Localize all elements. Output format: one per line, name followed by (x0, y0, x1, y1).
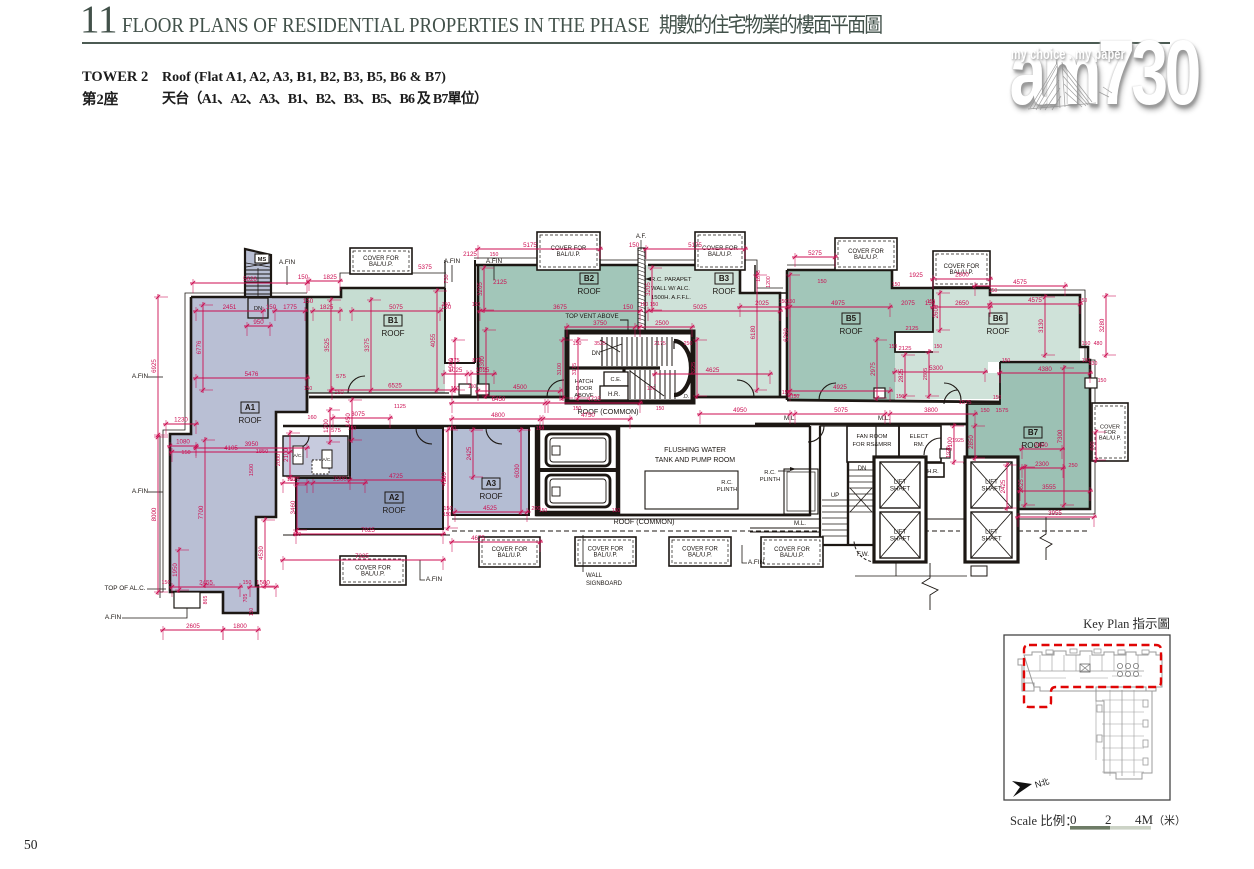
svg-text:5300: 5300 (929, 365, 943, 372)
svg-text:150: 150 (647, 386, 656, 392)
svg-text:ROOF: ROOF (839, 327, 862, 336)
svg-text:3300: 3300 (479, 356, 486, 370)
svg-text:ROOF: ROOF (986, 327, 1009, 336)
svg-text:BAL/U.P.: BAL/U.P. (594, 553, 618, 559)
svg-text:150: 150 (304, 386, 313, 392)
svg-text:A1: A1 (245, 403, 256, 412)
svg-text:BAL/U.P.: BAL/U.P. (369, 262, 393, 268)
svg-text:150: 150 (443, 512, 452, 518)
svg-text:4675: 4675 (471, 535, 485, 542)
svg-text:Scale 比例：: Scale 比例： (1010, 814, 1078, 828)
svg-text:R.C. PARAPET: R.C. PARAPET (651, 277, 692, 283)
svg-text:7325: 7325 (355, 553, 369, 560)
svg-text:7025: 7025 (361, 527, 375, 534)
svg-text:150: 150 (650, 302, 659, 308)
svg-text:0: 0 (1070, 812, 1077, 827)
svg-text:2805: 2805 (923, 368, 929, 380)
svg-text:150: 150 (791, 394, 800, 400)
svg-text:5375: 5375 (418, 264, 432, 271)
svg-text:A.FIN: A.FIN (444, 258, 461, 265)
svg-text:3280: 3280 (1099, 318, 1106, 332)
svg-text:M.L.: M.L. (794, 520, 806, 527)
svg-text:4530: 4530 (258, 546, 265, 560)
svg-text:BAL/U.P.: BAL/U.P. (498, 553, 522, 559)
svg-text:5175: 5175 (688, 242, 702, 249)
svg-text:RM.: RM. (914, 442, 925, 448)
svg-text:6525: 6525 (388, 383, 402, 390)
svg-text:150: 150 (782, 390, 791, 396)
svg-text:3075: 3075 (351, 411, 365, 418)
svg-text:4800: 4800 (491, 412, 505, 419)
svg-text:1825: 1825 (323, 274, 337, 281)
svg-text:2075: 2075 (901, 300, 915, 307)
svg-text:A.FIN: A.FIN (132, 488, 149, 495)
svg-text:1925: 1925 (952, 438, 964, 444)
svg-text:6030: 6030 (514, 464, 521, 478)
svg-text:2605: 2605 (186, 623, 200, 630)
svg-text:150: 150 (573, 341, 582, 347)
svg-text:UP: UP (831, 493, 839, 499)
svg-text:1900: 1900 (448, 358, 455, 372)
svg-text:150: 150 (539, 508, 548, 514)
svg-text:A.FIN: A.FIN (279, 259, 296, 266)
svg-text:150: 150 (303, 298, 314, 305)
svg-text:1200: 1200 (323, 419, 330, 433)
svg-text:2: 2 (1105, 812, 1112, 827)
svg-text:LIFT: LIFT (985, 529, 998, 536)
svg-text:WALL W/ ALC.: WALL W/ ALC. (651, 286, 690, 292)
svg-text:WALL: WALL (586, 573, 603, 579)
svg-text:150: 150 (623, 304, 634, 311)
svg-text:ROOF: ROOF (382, 506, 405, 515)
svg-text:4725: 4725 (587, 396, 601, 403)
svg-text:3205: 3205 (477, 282, 484, 296)
svg-text:1500: 1500 (249, 464, 255, 476)
svg-text:705: 705 (243, 594, 249, 603)
svg-text:ROOF (COMMON): ROOF (COMMON) (613, 517, 674, 526)
svg-text:250: 250 (684, 341, 693, 347)
svg-text:480: 480 (1094, 341, 1103, 347)
svg-text:5275: 5275 (808, 250, 822, 257)
svg-text:2300: 2300 (333, 476, 347, 483)
svg-text:150: 150 (472, 302, 481, 308)
svg-text:1500: 1500 (256, 580, 270, 587)
svg-text:HATCH: HATCH (575, 379, 594, 385)
svg-text:4M（米）: 4M（米） (1135, 812, 1186, 827)
svg-text:3525: 3525 (594, 341, 606, 347)
svg-text:A/C.: A/C. (294, 453, 303, 458)
svg-text:3675: 3675 (553, 304, 567, 311)
svg-text:150: 150 (927, 299, 936, 305)
svg-text:1200: 1200 (766, 276, 772, 288)
svg-text:150: 150 (892, 282, 901, 288)
svg-text:150: 150 (573, 406, 582, 412)
svg-text:1950: 1950 (172, 563, 179, 577)
svg-text:B2: B2 (584, 274, 595, 283)
svg-text:1575: 1575 (996, 408, 1009, 414)
svg-text:A.F.: A.F. (636, 234, 647, 240)
svg-text:150: 150 (298, 274, 309, 281)
svg-text:2850: 2850 (968, 435, 975, 449)
svg-text:B3: B3 (719, 274, 730, 283)
svg-text:R.C.: R.C. (764, 470, 776, 476)
svg-text:150: 150 (817, 279, 826, 285)
svg-text:A.FIN: A.FIN (486, 258, 503, 265)
svg-text:1850: 1850 (256, 449, 268, 455)
svg-text:4055: 4055 (430, 333, 437, 347)
svg-text:150: 150 (989, 288, 998, 294)
svg-text:575: 575 (331, 428, 341, 434)
svg-text:B5: B5 (846, 314, 857, 323)
svg-text:150: 150 (490, 252, 499, 258)
svg-text:PLINTH: PLINTH (717, 487, 738, 493)
svg-text:LIFT: LIFT (894, 529, 907, 536)
svg-text:150: 150 (1002, 358, 1011, 364)
svg-text:BAL/U.P.: BAL/U.P. (780, 553, 804, 559)
svg-text:.D.: .D. (683, 394, 689, 400)
svg-text:TANK AND PUMP ROOM: TANK AND PUMP ROOM (655, 457, 735, 464)
svg-text:H.R.: H.R. (608, 392, 620, 398)
svg-text:A.FIN: A.FIN (426, 576, 443, 583)
svg-text:4980: 4980 (441, 472, 448, 486)
svg-text:1575: 1575 (959, 400, 972, 406)
svg-text:1230: 1230 (174, 417, 188, 424)
svg-text:4105: 4105 (224, 445, 238, 452)
svg-text:2125: 2125 (906, 326, 919, 332)
svg-text:A.FIN: A.FIN (105, 614, 122, 621)
svg-text:DN: DN (858, 466, 867, 472)
svg-text:BAL/U.P.: BAL/U.P. (361, 572, 385, 578)
svg-text:150: 150 (162, 580, 171, 586)
svg-text:SHAFT: SHAFT (981, 486, 1002, 493)
svg-text:2800: 2800 (955, 272, 969, 279)
svg-text:PLINTH: PLINTH (760, 477, 781, 483)
svg-text:FOR RS&MRR: FOR RS&MRR (853, 442, 892, 448)
svg-text:5025: 5025 (693, 304, 707, 311)
svg-text:8000: 8000 (151, 507, 158, 521)
svg-text:6450: 6450 (492, 396, 506, 403)
svg-text:5476: 5476 (245, 371, 259, 378)
svg-text:150: 150 (468, 384, 477, 390)
svg-text:2300: 2300 (1035, 461, 1049, 468)
svg-text:150: 150 (448, 426, 457, 432)
svg-text:ROOF: ROOF (238, 416, 261, 425)
svg-text:ELECT: ELECT (910, 434, 929, 440)
svg-text:4575: 4575 (1028, 297, 1042, 304)
svg-text:2125: 2125 (493, 279, 507, 286)
svg-text:C.E.: C.E. (611, 377, 622, 383)
svg-text:DN: DN (592, 351, 601, 357)
svg-text:2500: 2500 (655, 320, 669, 327)
svg-text:SHAFT: SHAFT (890, 486, 911, 493)
svg-text:3750: 3750 (593, 320, 607, 327)
svg-text:5075: 5075 (389, 304, 403, 311)
svg-text:B6: B6 (993, 314, 1004, 323)
svg-text:2125: 2125 (463, 251, 477, 258)
svg-text:BAL/U.P.: BAL/U.P. (688, 553, 712, 559)
svg-text:6925: 6925 (151, 359, 158, 373)
svg-text:SHAFT: SHAFT (890, 536, 911, 543)
svg-text:1775: 1775 (283, 304, 297, 311)
svg-text:600: 600 (1090, 441, 1096, 450)
svg-text:730: 730 (444, 274, 450, 283)
svg-text:BAL/U.P.: BAL/U.P. (557, 252, 581, 258)
svg-text:3100: 3100 (557, 363, 563, 375)
svg-text:2425: 2425 (1000, 479, 1007, 493)
svg-text:2975: 2975 (870, 362, 877, 376)
svg-text:150: 150 (1098, 378, 1107, 384)
svg-text:LIFT: LIFT (894, 479, 907, 486)
svg-text:FAN ROOM: FAN ROOM (857, 434, 888, 440)
svg-text:B1: B1 (388, 316, 399, 325)
svg-text:7300: 7300 (1057, 429, 1064, 443)
svg-text:6776: 6776 (196, 340, 203, 354)
svg-text:3460: 3460 (290, 500, 297, 514)
svg-text:2605: 2605 (933, 304, 940, 318)
svg-text:150: 150 (1079, 298, 1088, 304)
svg-text:150: 150 (896, 394, 905, 400)
svg-text:ROOF: ROOF (479, 492, 502, 501)
svg-text:150: 150 (640, 302, 649, 308)
svg-text:150: 150 (993, 395, 1002, 401)
svg-text:LIFT: LIFT (985, 479, 998, 486)
svg-text:950: 950 (253, 319, 264, 326)
svg-text:ROOF: ROOF (712, 287, 735, 296)
svg-text:3955: 3955 (1048, 510, 1062, 517)
svg-text:2650: 2650 (955, 300, 969, 307)
svg-text:2825: 2825 (898, 368, 905, 382)
svg-text:4750: 4750 (581, 412, 595, 419)
svg-text:B7: B7 (1028, 428, 1039, 437)
svg-text:1500H. A.F.F.L.: 1500H. A.F.F.L. (651, 295, 691, 301)
svg-text:4500: 4500 (513, 384, 527, 391)
svg-text:160: 160 (307, 415, 316, 421)
svg-text:TOP VENT ABOVE: TOP VENT ABOVE (565, 313, 618, 320)
svg-text:4575: 4575 (1013, 279, 1027, 286)
svg-text:2455: 2455 (199, 580, 213, 587)
svg-text:BAL/U.P.: BAL/U.P. (854, 255, 878, 261)
svg-text:3205: 3205 (645, 282, 652, 296)
svg-text:Key Plan 指示圖: Key Plan 指示圖 (1083, 616, 1170, 631)
svg-text:SIGNBOARD: SIGNBOARD (586, 581, 623, 587)
svg-text:4525: 4525 (483, 505, 497, 512)
svg-text:SHAFT: SHAFT (981, 536, 1002, 543)
svg-text:5626: 5626 (243, 276, 257, 283)
svg-text:575: 575 (336, 374, 346, 380)
svg-text:1080: 1080 (176, 439, 190, 446)
svg-text:4950: 4950 (733, 407, 747, 414)
svg-text:150: 150 (889, 344, 898, 350)
svg-text:150: 150 (442, 302, 451, 308)
svg-text:A.FIN: A.FIN (132, 373, 149, 380)
svg-text:TOP OF AL.C.: TOP OF AL.C. (105, 585, 146, 592)
svg-text:2425: 2425 (466, 446, 473, 460)
svg-text:R.C.: R.C. (721, 480, 733, 486)
svg-text:3130: 3130 (1038, 319, 1045, 333)
svg-text:150: 150 (287, 477, 296, 483)
svg-text:150: 150 (348, 426, 357, 432)
svg-text:150: 150 (787, 299, 796, 305)
svg-text:1925: 1925 (909, 272, 923, 279)
svg-text:150: 150 (451, 386, 460, 392)
svg-text:150: 150 (249, 608, 255, 617)
svg-text:A/C.: A/C. (323, 457, 332, 462)
svg-text:150: 150 (334, 390, 343, 396)
svg-text:6180: 6180 (750, 325, 757, 339)
svg-text:A.FIN: A.FIN (748, 559, 765, 566)
svg-text:4725: 4725 (389, 473, 403, 480)
svg-text:4975: 4975 (831, 300, 845, 307)
svg-text:2000: 2000 (276, 454, 282, 466)
svg-text:3225: 3225 (691, 362, 697, 374)
svg-text:5175: 5175 (523, 242, 537, 249)
svg-text:150: 150 (181, 450, 190, 456)
svg-text:1800: 1800 (233, 623, 247, 630)
svg-text:1825: 1825 (320, 304, 334, 311)
svg-text:BAL/U.P.: BAL/U.P. (708, 252, 732, 258)
svg-text:150: 150 (1082, 358, 1091, 364)
svg-text:6260: 6260 (783, 328, 790, 342)
svg-text:150: 150 (656, 406, 665, 412)
svg-text:3175: 3175 (572, 363, 578, 375)
svg-text:3375: 3375 (364, 338, 371, 352)
svg-text:3950: 3950 (245, 441, 259, 448)
svg-text:250: 250 (1068, 463, 1077, 469)
svg-text:4380: 4380 (1038, 366, 1052, 373)
svg-text:2175: 2175 (654, 341, 666, 347)
svg-text:150: 150 (980, 408, 989, 414)
svg-text:2100: 2100 (283, 448, 290, 462)
svg-text:ROOF: ROOF (381, 329, 404, 338)
svg-text:150: 150 (293, 532, 302, 538)
svg-text:3555: 3555 (1042, 484, 1056, 491)
svg-text:5075: 5075 (834, 407, 848, 414)
svg-text:ROOF: ROOF (577, 287, 600, 296)
svg-text:2125: 2125 (899, 346, 912, 352)
svg-text:865: 865 (203, 596, 209, 605)
svg-text:1925: 1925 (946, 446, 952, 458)
svg-text:150: 150 (536, 426, 545, 432)
svg-text:4625: 4625 (706, 367, 720, 374)
svg-text:1125: 1125 (394, 404, 406, 410)
svg-text:7700: 7700 (198, 505, 205, 519)
svg-text:FLUSHING WATER: FLUSHING WATER (664, 447, 726, 454)
svg-text:4925: 4925 (833, 384, 847, 391)
svg-text:150: 150 (629, 242, 640, 249)
svg-text:150: 150 (1082, 341, 1091, 347)
svg-text:150: 150 (934, 344, 943, 350)
svg-text:F.W.: F.W. (857, 551, 869, 558)
svg-text:2451: 2451 (223, 304, 237, 311)
svg-text:150: 150 (612, 508, 621, 514)
svg-text:BAL/U.P.: BAL/U.P. (1099, 436, 1122, 442)
svg-text:2400: 2400 (1034, 442, 1048, 449)
svg-text:3800: 3800 (924, 407, 938, 414)
svg-text:A2: A2 (389, 493, 400, 502)
svg-text:3525: 3525 (324, 338, 331, 352)
svg-text:H.R.: H.R. (927, 469, 939, 475)
svg-text:MS: MS (258, 257, 267, 263)
svg-text:A3: A3 (486, 479, 497, 488)
